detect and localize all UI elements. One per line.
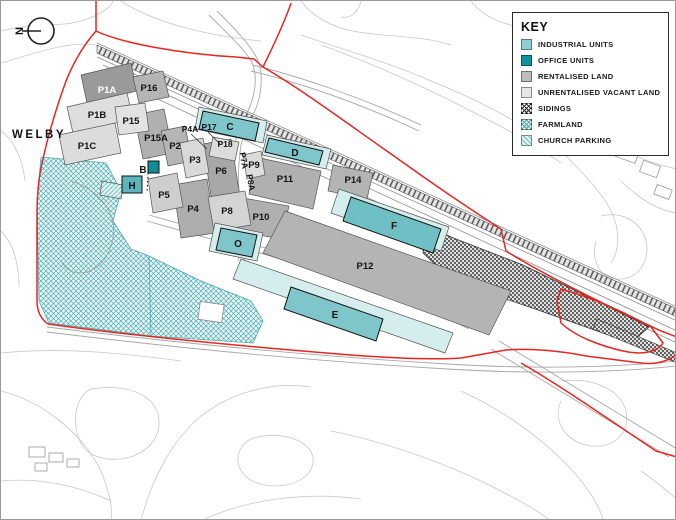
- label-p1b: P1B: [88, 110, 107, 121]
- key-item-unrentalised-vacant-land: UNRENTALISED VACANT LAND: [521, 87, 660, 98]
- label-p2: P2: [169, 141, 181, 152]
- label-building-e: E: [332, 310, 339, 321]
- key-item-rentalised-land: RENTALISED LAND: [521, 71, 660, 82]
- key-item-farmland: FARMLAND: [521, 119, 660, 130]
- label-p4a: P4A: [182, 124, 199, 134]
- key-label: FARMLAND: [538, 120, 583, 129]
- building-b: [148, 161, 159, 173]
- label-building-c: C: [226, 122, 233, 133]
- label-building-f: F: [391, 221, 397, 232]
- label-p16: P16: [141, 83, 158, 94]
- office-units-swatch: [521, 55, 532, 66]
- label-p8a: P8A: [245, 173, 258, 191]
- label-p14: P14: [345, 175, 363, 186]
- north-arrow: N: [14, 18, 54, 44]
- label-p15: P15: [123, 116, 141, 127]
- north-label: N: [14, 27, 26, 35]
- label-p17: P17: [201, 122, 216, 132]
- label-p1c: P1C: [78, 141, 97, 152]
- industrial-units-swatch: [521, 39, 532, 50]
- site-plan-map: N WELBY P1A P16 P1B P15 P15A P1C P2 P4A …: [0, 0, 676, 520]
- key-label: RENTALISED LAND: [538, 72, 614, 81]
- key-item-industrial-units: INDUSTRIAL UNITS: [521, 39, 660, 50]
- key-item-office-units: OFFICE UNITS: [521, 55, 660, 66]
- map-key: KEY INDUSTRIAL UNITS OFFICE UNITS RENTAL…: [512, 12, 669, 156]
- church-parking-swatch: [521, 135, 532, 146]
- key-label: OFFICE UNITS: [538, 56, 594, 65]
- label-p11: P11: [277, 174, 294, 185]
- key-item-church-parking: CHURCH PARKING: [521, 135, 660, 146]
- label-p5: P5: [158, 190, 170, 201]
- label-p1a: P1A: [98, 85, 117, 96]
- label-p9: P9: [248, 160, 260, 171]
- key-label: SIDINGS: [538, 104, 571, 113]
- label-building-h: H: [128, 181, 135, 192]
- label-p8: P8: [221, 206, 233, 217]
- label-p3: P3: [189, 155, 201, 166]
- unrentalised-vacant-land-swatch: [521, 87, 532, 98]
- label-p10: P10: [253, 212, 270, 223]
- key-item-sidings: SIDINGS: [521, 103, 660, 114]
- label-p15a: P15A: [144, 133, 168, 144]
- rentalised-land-swatch: [521, 71, 532, 82]
- key-label: INDUSTRIAL UNITS: [538, 40, 613, 49]
- place-label-welby: WELBY: [12, 129, 66, 141]
- label-building-o: O: [234, 239, 242, 250]
- sidings-swatch: [521, 103, 532, 114]
- label-p6: P6: [215, 166, 227, 177]
- farmland-swatch: [521, 119, 532, 130]
- label-building-d: D: [291, 148, 298, 159]
- label-p12: P12: [357, 261, 374, 272]
- label-p4: P4: [187, 204, 199, 215]
- label-building-b: B: [139, 165, 146, 176]
- key-label: UNRENTALISED VACANT LAND: [538, 88, 660, 97]
- key-label: CHURCH PARKING: [538, 136, 612, 145]
- key-title: KEY: [521, 20, 660, 34]
- label-p18: P18: [217, 139, 232, 149]
